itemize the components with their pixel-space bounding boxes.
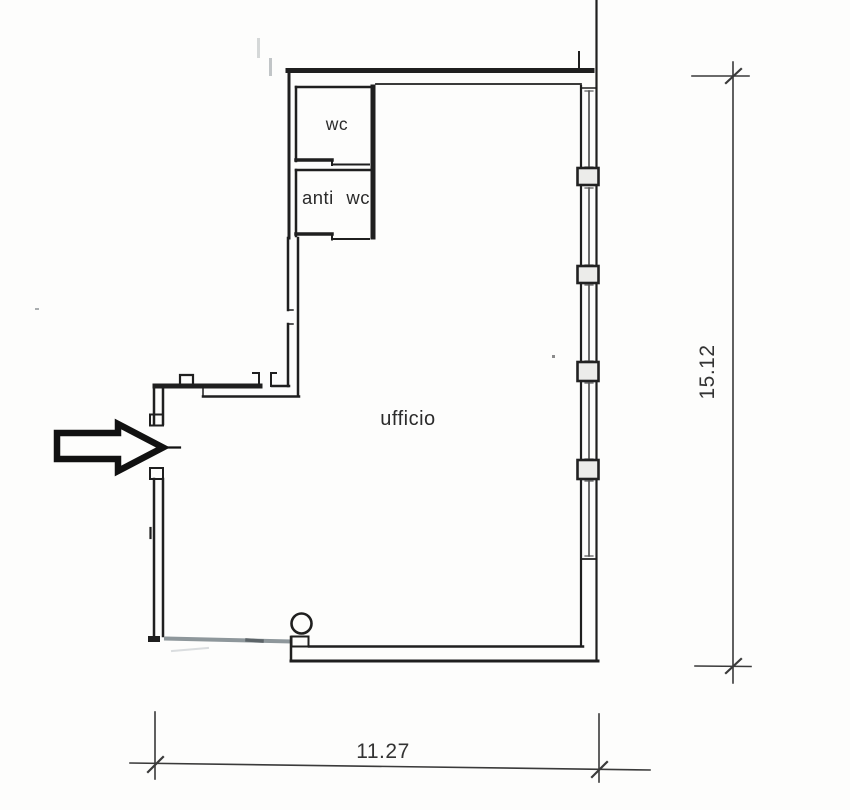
window-mullion — [578, 266, 599, 283]
floor-plan-page: wc anti wc — [0, 0, 850, 810]
window-mullion — [578, 362, 599, 381]
room-label-ufficio: ufficio — [380, 408, 435, 430]
floor-plan-svg: wc anti wc — [0, 0, 850, 810]
column-circle — [292, 614, 312, 634]
partition-dark-smudge — [247, 640, 262, 641]
window-mullion — [578, 168, 599, 185]
wall-foot — [148, 636, 160, 642]
paper-background — [0, 0, 850, 810]
room-label-anti-wc: anti wc — [302, 187, 370, 208]
dimension-width-label: 11.27 — [356, 740, 410, 763]
dimension-height-label: 15.12 — [696, 344, 719, 399]
room-label-wc: wc — [325, 114, 348, 134]
window-mullion — [578, 460, 599, 479]
